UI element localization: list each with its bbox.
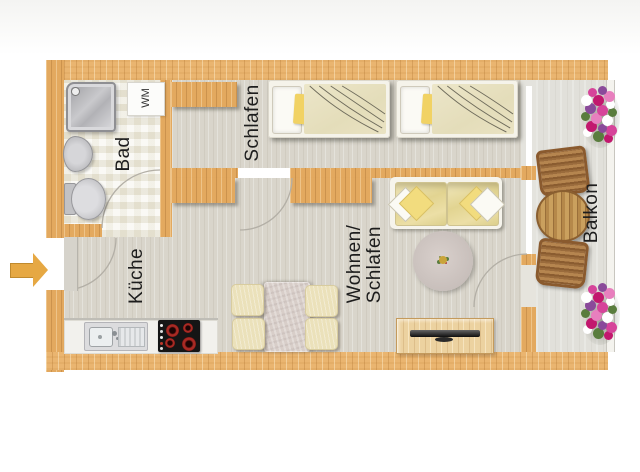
kitchen-faucet	[112, 331, 117, 336]
flower-blossoms	[580, 86, 585, 91]
toilet	[64, 178, 106, 218]
flower-box-2	[580, 283, 620, 345]
balcony-chair-2	[535, 238, 590, 290]
bed-1	[268, 80, 390, 138]
dining-table	[264, 282, 310, 352]
wall-bottom	[46, 352, 608, 370]
round-rug	[413, 231, 473, 291]
wall-left-upper	[46, 60, 64, 238]
bed-2	[396, 80, 518, 138]
toilet-bowl	[71, 178, 106, 220]
partition-post-2	[521, 254, 536, 265]
wall-bathroom-bottom	[64, 224, 102, 237]
washing-machine-label: WM	[140, 88, 152, 108]
room-label-balkon: Balkon	[581, 183, 603, 244]
tv-stand	[435, 337, 453, 342]
room-label-bad: Bad	[113, 136, 135, 171]
floorplan-canvas: Bad Schlafen Küche Wohnen/ Schlafen Balk…	[0, 0, 640, 472]
kitchen-sink-basin	[89, 327, 113, 347]
stove-burner-2	[183, 323, 193, 333]
flower-box-1	[580, 86, 620, 148]
balcony-door-opening	[521, 265, 536, 307]
cabinet-divider-left	[171, 178, 235, 203]
flower-blossoms	[580, 283, 585, 288]
dining-chair-3	[305, 285, 338, 317]
partition-post-3	[521, 307, 536, 352]
dining-chair-1	[231, 284, 264, 316]
room-label-kueche: Küche	[126, 248, 148, 304]
entry-door-leaf	[64, 237, 78, 291]
room-label-wohnen-line2: Schlafen	[365, 225, 385, 304]
wall-top	[46, 60, 608, 80]
room-label-wohnen-schlafen: Wohnen/ Schlafen	[345, 225, 385, 304]
tv-screen	[410, 330, 480, 337]
partition-post-1	[521, 166, 536, 180]
kitchen-sink-drainer	[118, 327, 145, 347]
stove-burner-3	[165, 338, 175, 348]
room-label-schlafen: Schlafen	[242, 84, 264, 161]
shower	[66, 82, 116, 132]
wardrobe-bedroom	[171, 82, 237, 107]
bed-duvet	[304, 84, 386, 134]
entry-arrow-icon-head	[33, 253, 48, 287]
stove-burner-4	[182, 337, 196, 351]
bed-duvet	[432, 84, 514, 134]
kitchen-sink-unit	[84, 322, 148, 351]
cabinet-divider-right	[290, 178, 372, 203]
entry-arrow-icon	[10, 263, 34, 278]
stove-knobs	[160, 324, 163, 327]
stove-burner-1	[166, 324, 179, 337]
rug-centerpiece	[439, 256, 447, 264]
window-glass-1	[526, 86, 532, 166]
sofa	[390, 177, 502, 229]
bedroom-door-opening	[238, 168, 290, 178]
dining-chair-4	[305, 318, 338, 350]
tv-lowboard	[396, 318, 494, 354]
window-glass-2	[526, 180, 532, 254]
dining-chair-2	[232, 318, 265, 350]
room-label-wohnen-line1: Wohnen/	[345, 225, 365, 304]
wall-divider-left	[171, 168, 238, 178]
